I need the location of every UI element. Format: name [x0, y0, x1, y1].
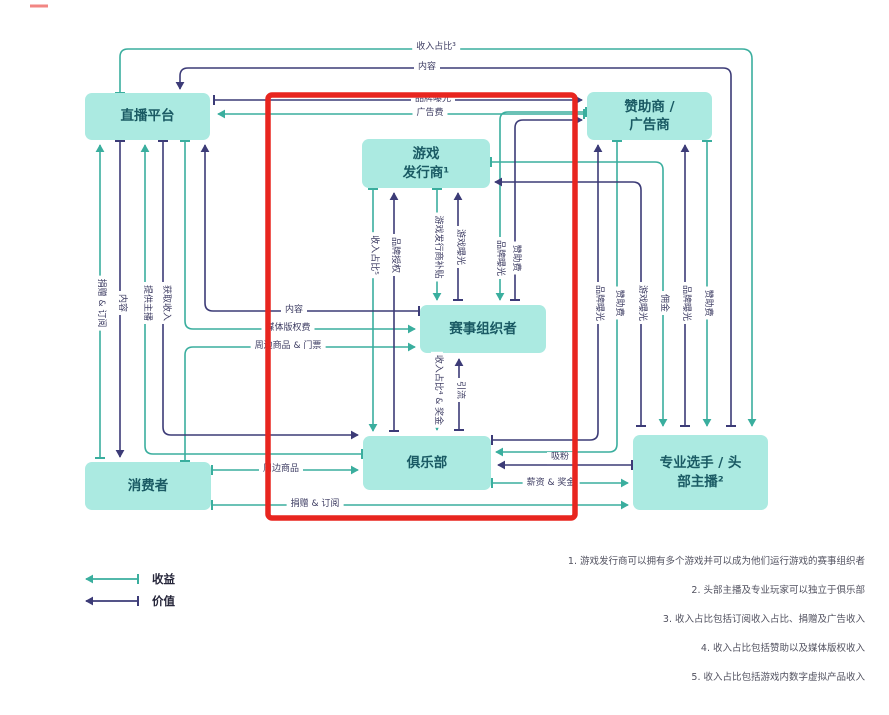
label-donate-subscribe-left: 捐赠 & 订阅 [94, 276, 106, 331]
label-revenue-share3: 收入占比³ [412, 42, 460, 54]
edge-brand-exposure-organizer-to-sponsor [515, 120, 582, 300]
legend-value-row: 价值 [78, 590, 175, 612]
label-game-exposure-players: 游戏曝光 [635, 282, 647, 324]
legend: 收益 价值 [78, 568, 175, 612]
edge-obtain-revenue-platform-to-club [163, 141, 358, 435]
label-game-exposure-center: 游戏曝光 [453, 226, 465, 268]
node-pro-players-streamers: 专业选手 / 头 部主播² [633, 435, 768, 510]
label-merch-tickets: 周边商品 & 门票 [251, 341, 326, 353]
node-streaming-platform: 直播平台 [85, 93, 210, 140]
node-event-organizer-label: 赛事组织者 [449, 320, 517, 338]
node-event-organizer: 赛事组织者 [420, 305, 546, 353]
legend-revenue-arrow-icon [78, 573, 142, 585]
legend-revenue-row: 收益 [78, 568, 175, 590]
footnote-1: 1. 游戏发行商可以拥有多个游戏并可以成为他们运行游戏的赛事组织者 [345, 553, 865, 567]
node-pro-players-streamers-label: 专业选手 / 头 部主播² [660, 454, 742, 490]
label-revenue-share5: 收入占比⁵ [367, 232, 379, 278]
label-provide-streamers: 提供主播 [140, 282, 152, 324]
footnote-2: 2. 头部主播及专业玩家可以独立于俱乐部 [345, 582, 865, 596]
label-brand-exposure-organizer: 品牌曝光 [493, 237, 505, 279]
label-brand-exposure-players: 品牌曝光 [679, 282, 691, 324]
label-revenue-share4-bonus: 收入占比⁴ & 奖金 [431, 352, 443, 428]
node-club: 俱乐部 [363, 436, 491, 490]
legend-value-label: 价值 [152, 593, 175, 609]
label-attract-fans: 吸粉 [547, 452, 573, 464]
footnotes: 1. 游戏发行商可以拥有多个游戏并可以成为他们运行游戏的赛事组织者 2. 头部主… [345, 553, 865, 698]
node-consumer: 消费者 [85, 462, 211, 510]
node-game-publisher-label: 游戏 发行商¹ [403, 145, 449, 181]
label-merch: 周边商品 [259, 464, 303, 476]
label-content-mid: 内容 [281, 305, 307, 317]
label-content-top: 内容 [414, 62, 440, 74]
label-brand-license: 品牌授权 [388, 234, 400, 276]
label-drive-traffic: 引流 [453, 378, 465, 402]
node-club-label: 俱乐部 [407, 454, 448, 472]
label-commission: 佣金 [657, 291, 669, 315]
footnote-5: 5. 收入占比包括游戏内数字虚拟产品收入 [345, 669, 865, 683]
legend-value-arrow-icon [78, 595, 142, 607]
label-obtain-revenue: 获取收入 [159, 282, 171, 324]
node-sponsor-advertiser-label: 赞助商 / 广告商 [624, 98, 674, 134]
edge-provide-streamers-club-to-platform [145, 145, 362, 454]
label-ad-fee: 广告费 [412, 108, 447, 120]
label-publisher-subsidy: 游戏发行商补贴 [431, 212, 443, 281]
footnote-3: 3. 收入占比包括订阅收入占比、捐赠及广告收入 [345, 611, 865, 625]
edge-brand-exposure-club-to-sponsor [492, 145, 598, 440]
node-game-publisher: 游戏 发行商¹ [362, 139, 490, 188]
label-brand-exposure-club: 品牌曝光 [592, 282, 604, 324]
node-consumer-label: 消费者 [128, 477, 169, 495]
legend-revenue-label: 收益 [152, 571, 175, 587]
label-salary-bonus: 薪资 & 奖金 [523, 478, 580, 490]
label-sponsor-fee-organizer: 赞助费 [509, 241, 521, 274]
node-streaming-platform-label: 直播平台 [121, 107, 175, 125]
node-sponsor-advertiser: 赞助商 / 广告商 [587, 92, 712, 140]
footnote-4: 4. 收入占比包括赞助以及媒体版权收入 [345, 640, 865, 654]
label-sponsor-fee-club: 赞助费 [612, 286, 624, 319]
label-brand-exposure-top: 品牌曝光 [411, 94, 455, 106]
diagram-canvas: 直播平台 赞助商 / 广告商 游戏 发行商¹ 赛事组织者 俱乐部 消费者 专业选… [0, 0, 889, 715]
label-content-left: 内容 [115, 291, 127, 315]
label-donate-subscribe-bottom: 捐赠 & 订阅 [287, 499, 344, 511]
label-sponsor-fee-players: 赞助费 [701, 286, 713, 319]
label-media-rights: 媒体版权费 [261, 323, 314, 335]
